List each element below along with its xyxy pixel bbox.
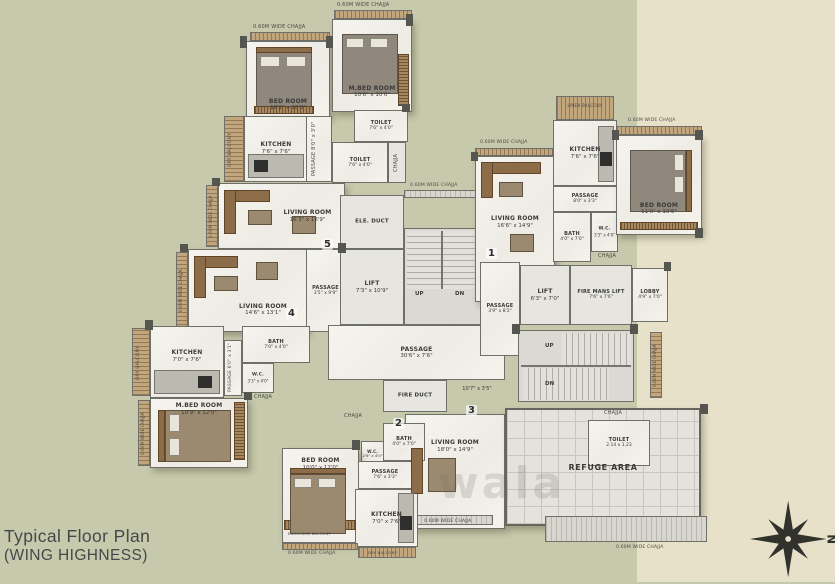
room-wc-flat4: W.C.3'3" x 4'0" — [242, 363, 274, 393]
wall-column — [352, 440, 360, 450]
chajja-strip — [616, 126, 702, 135]
wall-column — [471, 152, 478, 161]
stair-divider — [441, 231, 443, 289]
room-passage-top-left — [306, 116, 332, 182]
room-passage-main: PASSAGE30'6" x 7'6" — [328, 325, 505, 380]
chajja-strip — [250, 32, 330, 41]
flat-number-3: 3 — [466, 405, 477, 416]
chajja-slab — [545, 516, 707, 542]
room-passage-flat1: PASSAGE8'0" x 3'3" — [553, 186, 617, 212]
wall-column — [630, 324, 638, 334]
chajja-label: 0.60M WIDE CHAJJA — [288, 551, 336, 556]
chajja-label: 0.60M WIDE CHAJJA — [410, 183, 458, 188]
plan-title-line1: Typical Floor Plan — [4, 526, 150, 547]
stair-up-label: UP — [545, 343, 554, 349]
watermark: wala — [438, 458, 565, 509]
dry-balcony-label: DRY BALCONY — [136, 336, 141, 390]
wall-column — [145, 320, 153, 330]
passage-flat3-entry: 10'7" x 3'5" — [447, 380, 507, 412]
plan-title-line2: (WING HIGHNESS) — [4, 547, 150, 565]
coffee-table — [214, 276, 238, 291]
chajja-strip — [334, 10, 412, 19]
passage-label: PASSAGE 6'0" x 3'1" — [228, 344, 233, 392]
wall-column — [240, 36, 247, 48]
pillow — [674, 176, 684, 193]
chajja-label: CHAJJA — [344, 413, 362, 419]
chajja-strip — [404, 190, 482, 198]
linen-balcony-strip — [556, 96, 614, 120]
room-lift-main: LIFT7'3" x 10'9" — [340, 249, 404, 325]
sofa — [411, 448, 423, 494]
flat-number-1: 1 — [486, 248, 497, 259]
room-toilet-b: TOILET7'6" x 4'0" — [332, 142, 388, 183]
dry-balcony-label: DRY BALCONY — [368, 550, 397, 555]
chajja-label: 0.60M WIDE CHAJJA — [208, 190, 213, 244]
stair-dn-label: DN — [545, 381, 554, 387]
wall-column — [338, 243, 346, 253]
pillow — [260, 56, 280, 67]
dry-balcony-strip — [132, 328, 150, 396]
enclosed-balcony-label: ENCLOSED BALCONY — [288, 531, 331, 536]
pillow — [294, 478, 312, 488]
coffee-table — [248, 210, 272, 225]
dry-balcony-strip — [224, 116, 244, 182]
window-rail — [620, 222, 698, 230]
chajja-label: 0.60M WIDE CHAJJA — [480, 140, 528, 145]
flat-number-5: 5 — [322, 239, 333, 250]
wall-column — [402, 104, 410, 112]
pillow — [169, 438, 180, 456]
stair-up-label: UP — [415, 291, 424, 297]
room-wc-flat1: W.C.3'3" x 4'0" — [591, 212, 618, 252]
room-lift-b: LIFT6'3" x 7'0" — [520, 265, 570, 325]
chajja-label: 0.60M WIDE CHAJJA — [178, 258, 183, 324]
wall-column — [700, 404, 708, 414]
chajja-label: CHAJJA — [598, 253, 616, 259]
sofa — [224, 190, 236, 234]
wall-column — [695, 130, 703, 140]
stove — [198, 376, 212, 388]
chajja-label: CHAJJA — [393, 148, 399, 178]
room-bath-flat4: BATH7'0" x 4'0" — [242, 326, 310, 363]
room-toilet-a: TOILET7'6" x 4'0" — [354, 110, 408, 142]
chajja-label: CHAJJA — [254, 394, 272, 400]
room-ele-duct: ELE. DUCT — [340, 195, 404, 249]
compass-n-label: N — [824, 534, 835, 544]
staircase-main: UP DN — [404, 228, 482, 325]
linen-balcony-label: LINEN BALCONY — [560, 103, 610, 108]
dining-table — [256, 262, 278, 280]
room-bath-flat1: BATH4'0" x 7'0" — [553, 212, 591, 262]
chajja-label: CHAJJA — [604, 410, 622, 416]
room-passage-right: PASSAGE3'9" x 8'2" — [480, 262, 520, 356]
wall-column — [664, 262, 671, 271]
pillow — [286, 56, 306, 67]
bed-headboard — [158, 410, 165, 462]
room-lobby: LOBBY4'9" x 7'0" — [632, 268, 668, 322]
sofa — [481, 162, 493, 198]
flat-number-2: 2 — [393, 418, 404, 429]
coffee-table — [499, 182, 523, 197]
pillow — [674, 154, 684, 171]
stair-dn-label: DN — [455, 291, 464, 297]
chajja-label: 0.60M WIDE CHAJJA — [337, 2, 389, 8]
wall-column — [180, 244, 188, 252]
plan-title: Typical Floor Plan (WING HIGHNESS) — [4, 526, 150, 565]
stair-treads — [523, 368, 609, 400]
chajja-strip — [282, 543, 358, 550]
flat-number-4: 4 — [286, 308, 297, 319]
dining-table — [510, 234, 534, 252]
chajja-strip — [475, 148, 553, 156]
staircase-right: UP DN — [518, 330, 634, 402]
pillow — [318, 478, 336, 488]
wall-column — [406, 14, 413, 26]
chajja-label: 0.60M WIDE CHAJJA — [652, 338, 657, 394]
room-fire-lift: FIRE MANS LIFT7'6" x 7'6" — [570, 265, 632, 325]
pillow — [169, 414, 180, 432]
chajja-label: 0.60M WIDE CHAJJA — [140, 406, 145, 462]
stair-treads — [561, 333, 631, 365]
bed-headboard — [256, 47, 312, 53]
wall-column — [212, 178, 220, 186]
compass-north-icon: N — [746, 498, 835, 584]
stair-divider — [521, 365, 631, 367]
room-toilet-refuge: TOILET2.14 x 1.23 — [588, 420, 650, 466]
passage-label: PASSAGE 8'0" x 3'0" — [311, 124, 317, 176]
wall-column — [695, 228, 703, 238]
wall-column — [612, 130, 619, 140]
chajja-label: 0.60M WIDE CHAJJA — [616, 545, 664, 550]
room-passage-flat2: PASSAGE7'6" x 3'3" — [358, 461, 412, 489]
stove — [254, 160, 268, 172]
pillow — [370, 38, 388, 48]
pillow — [346, 38, 364, 48]
sofa — [194, 256, 206, 298]
chajja-label: 0.60M WIDE CHAJJA — [628, 118, 676, 123]
dry-balcony-label: DRY BALCONY — [228, 124, 233, 176]
room-passage-flat4b — [224, 340, 242, 396]
wall-column — [244, 392, 252, 400]
wall-column — [512, 324, 520, 334]
wall-column — [326, 36, 333, 48]
chajja-label: 0.60M WIDE CHAJJA — [424, 519, 472, 524]
chajja-label: 0.60M WIDE CHAJJA — [253, 24, 305, 30]
room-fire-duct: FIRE DUCT — [383, 380, 447, 412]
